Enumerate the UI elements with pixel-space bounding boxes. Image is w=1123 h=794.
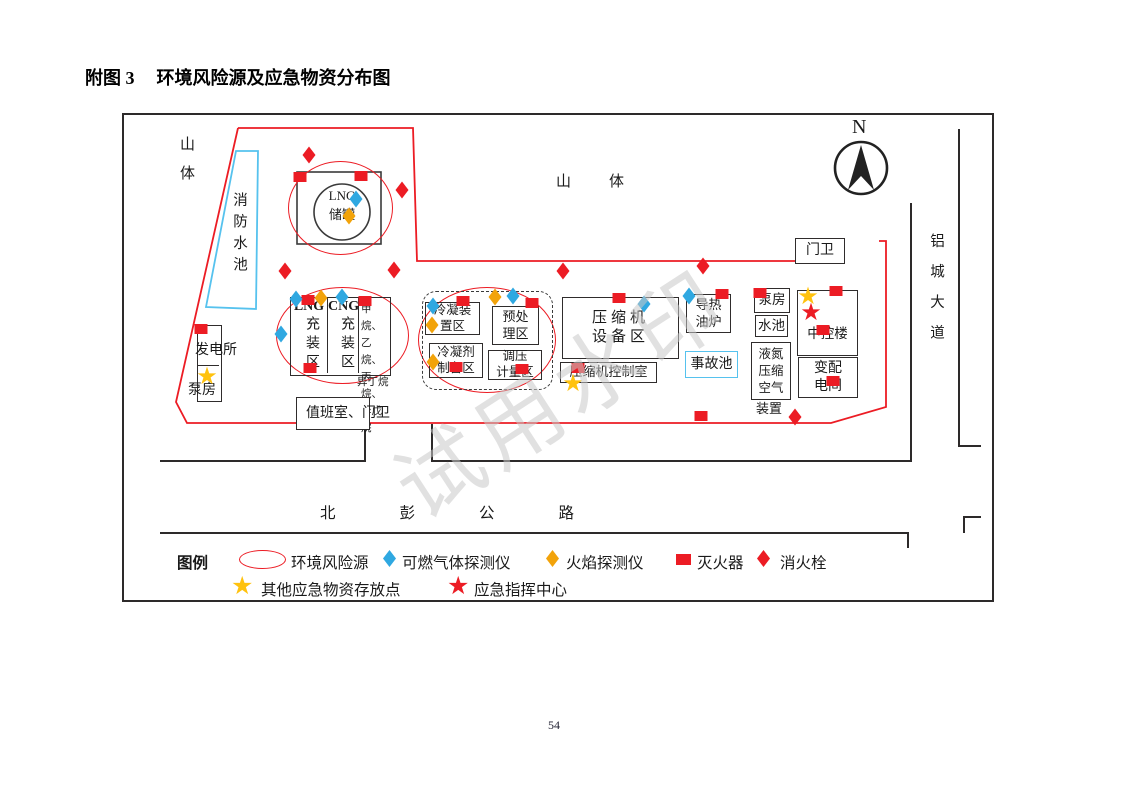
road-label-south: 北彭公路	[320, 501, 638, 523]
compressor-area-box: 压缩机 设备区	[562, 297, 679, 359]
water-pool-label: 水池	[758, 318, 785, 335]
water-pool-box: 水池	[755, 315, 788, 337]
isobutane-label: 异丁烷	[357, 374, 389, 389]
emergency-supplies-marker: ★	[196, 364, 218, 388]
fire-extinguisher-marker	[613, 293, 626, 303]
fire-extinguisher-marker	[457, 296, 470, 306]
supplies-legend-icon: ★	[231, 573, 253, 598]
legend-ext-label: 灭火器	[697, 551, 744, 573]
road-edge-east-outer	[959, 129, 981, 446]
legend-gas-label: 可燃气体探测仪	[402, 551, 511, 573]
gate-guard-label: 门卫	[806, 242, 834, 260]
ln2-air-label-2: 装置	[756, 398, 782, 417]
fire-extinguisher-marker	[294, 172, 307, 182]
mountain-label-top: 山体	[556, 170, 662, 191]
ln2-air-label: 液氮 压缩 空气	[758, 346, 783, 397]
fire-pool-label: 消防水池	[229, 192, 250, 278]
pretreatment-label: 预处 理区	[502, 309, 528, 342]
compass-north-label: N	[852, 116, 866, 139]
duty-room-label: 值班室、门卫	[297, 405, 390, 423]
fire-extinguisher-marker	[716, 289, 729, 299]
gate-guard-box: 门卫	[795, 238, 845, 264]
emergency-supplies-marker: ★	[562, 371, 584, 395]
duty-room-box: 值班室、门卫	[296, 397, 370, 430]
document-page: 附图 3环境风险源及应急物资分布图 山体 山体 北彭公路 铝城大道 N 消防水池…	[0, 0, 1123, 794]
fire-extinguisher-marker	[359, 296, 372, 306]
fire-extinguisher-marker	[195, 324, 208, 334]
cng-fill-body: 充装区	[336, 316, 356, 373]
road-corner-southeast	[964, 517, 981, 533]
compass-needle-icon	[848, 145, 874, 190]
risk-source-legend-icon	[239, 550, 286, 569]
oil-furnace-label: 导热 油炉	[695, 297, 721, 330]
fire-extinguisher-marker	[695, 411, 708, 421]
fire-extinguisher-marker	[827, 376, 840, 386]
legend-title: 图例	[177, 551, 208, 573]
pretreatment-box: 预处 理区	[492, 306, 539, 345]
fire-extinguisher-marker	[302, 295, 315, 305]
legend-command-label: 应急指挥中心	[474, 578, 567, 600]
fire-extinguisher-marker	[817, 325, 830, 335]
command-legend-icon: ★	[447, 573, 469, 598]
oil-furnace-box: 导热 油炉	[686, 294, 731, 333]
fire-extinguisher-marker	[830, 286, 843, 296]
fire-extinguisher-marker	[754, 288, 767, 298]
legend-flame-label: 火焰探测仪	[566, 551, 644, 573]
extinguisher-legend-icon	[676, 554, 691, 565]
fire-extinguisher-marker	[304, 363, 317, 373]
fire-extinguisher-marker	[526, 298, 539, 308]
legend-storage-label: 其他应急物资存放点	[261, 578, 401, 600]
power-station-label: 发电所	[195, 339, 237, 359]
road-label-east: 铝城大道	[926, 233, 947, 355]
fire-extinguisher-marker	[450, 362, 463, 372]
legend-risk-label: 环境风险源	[291, 551, 369, 573]
mountain-label-left: 山体	[176, 136, 197, 194]
command-center-marker: ★	[800, 300, 822, 324]
fire-extinguisher-marker	[516, 364, 529, 374]
road-edge-south-bottom	[160, 533, 908, 548]
map-linework	[0, 0, 1123, 794]
compressor-area-label: 压缩机 设备区	[592, 309, 649, 347]
accident-pool-box: 事故池	[685, 351, 738, 378]
fire-extinguisher-marker	[355, 171, 368, 181]
legend-hyd-label: 消火栓	[780, 551, 827, 573]
lng-tank-label: LNG 储罐	[314, 188, 370, 223]
accident-pool-label: 事故池	[691, 356, 733, 374]
ln2-air-box: 液氮 压缩 空气	[751, 342, 791, 400]
condensing-unit-label: 冷凝装 置区	[434, 303, 472, 334]
